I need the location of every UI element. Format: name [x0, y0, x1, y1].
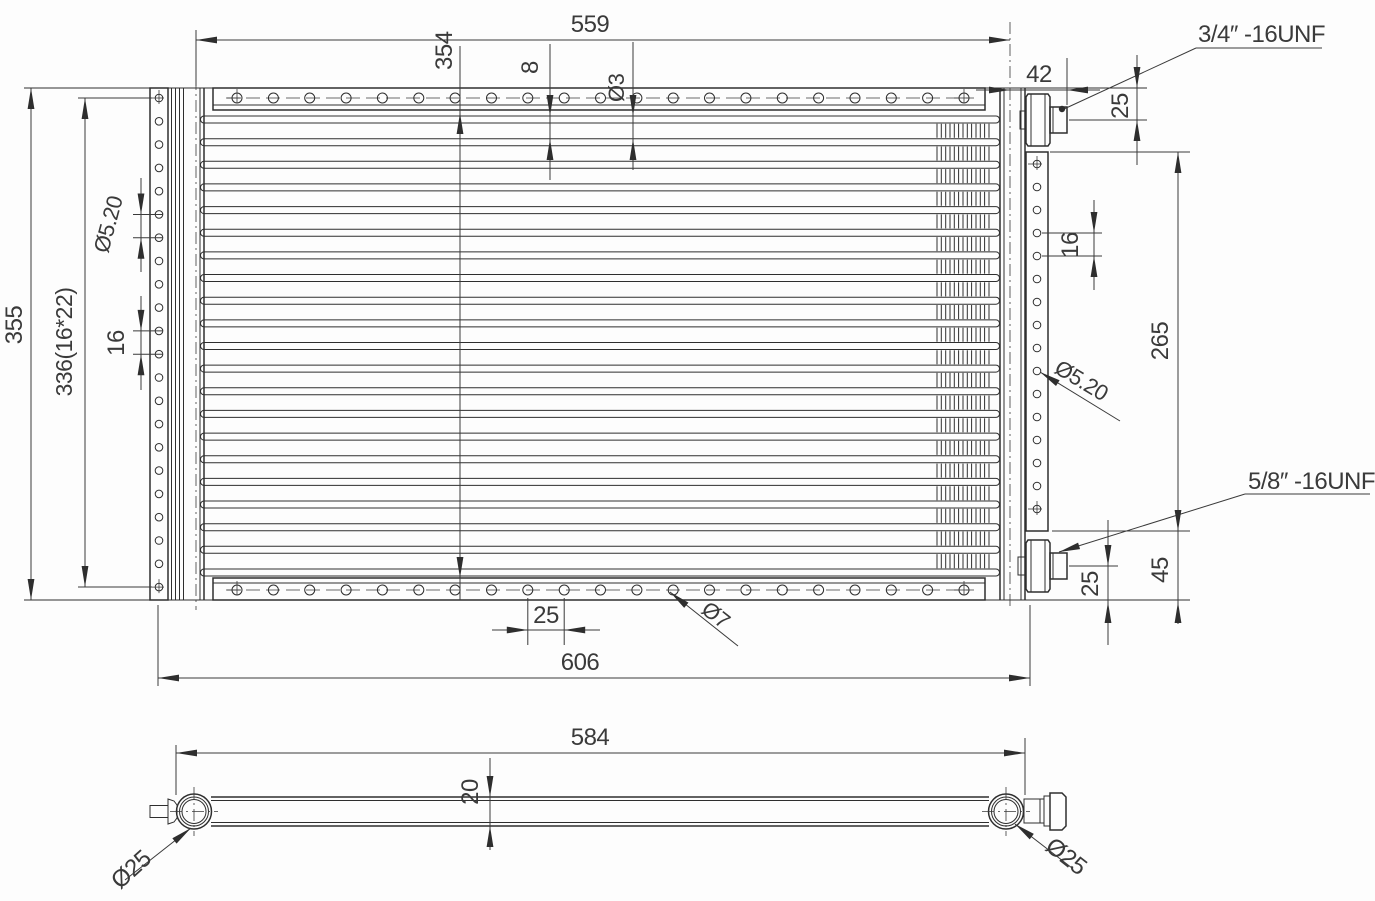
dimension-arrow: [1091, 256, 1098, 277]
dim-dia520l-text: Ø5.20: [89, 193, 128, 255]
core-tubes: [201, 116, 1000, 576]
tube: [201, 297, 1000, 304]
drawing-sheet: 559 354 8 Ø3 42 3/4″ -16UNF 25 16: [0, 0, 1375, 901]
left-bracket-hole: [155, 257, 163, 265]
left-bracket-hole: [155, 537, 163, 545]
dimension-arrow: [507, 627, 528, 634]
tube: [201, 229, 1000, 236]
dimension-arrow: [457, 557, 464, 578]
dimension-arrow: [1091, 212, 1098, 233]
dimension-arrow: [176, 750, 197, 757]
right-bracket-hole: [1033, 390, 1041, 398]
tube: [201, 207, 1000, 214]
tube: [201, 501, 1000, 508]
side-right-port: [982, 787, 1066, 836]
dim-25b-text: 25: [533, 602, 559, 629]
right-bracket-hole: [1033, 459, 1041, 467]
dim-354-text: 354: [431, 31, 458, 70]
dimension-8: 8: [517, 44, 550, 180]
dimension-arrow: [28, 88, 35, 109]
dimension-arrow: [487, 776, 494, 797]
tube: [201, 388, 1000, 395]
dim-265-text: 265: [1147, 322, 1174, 361]
left-bracket-hole: [155, 467, 163, 475]
dimension-584: 584: [176, 724, 1025, 795]
dimension-arrow: [1175, 152, 1182, 173]
tube: [201, 116, 1000, 123]
dimension-dia520-right: Ø5.20: [1040, 355, 1120, 421]
dimension-dia3: Ø3: [604, 42, 633, 170]
right-bracket-hole: [1033, 252, 1041, 260]
side-left-port: [150, 787, 218, 836]
right-bracket: [1026, 152, 1048, 531]
left-bracket-hole: [155, 141, 163, 149]
side-right-fitting: [1024, 799, 1044, 823]
dimension-arrow: [138, 354, 145, 375]
dim-25tr-text: 25: [1107, 93, 1134, 119]
dimension-45: 45: [1147, 531, 1178, 624]
tube: [201, 139, 1000, 146]
top-port-thread-text: 3/4″ -16UNF: [1198, 21, 1325, 48]
dim-dia25r-text: Ø25: [1040, 832, 1091, 880]
tube: [201, 252, 1000, 259]
dimension-arrow: [1175, 510, 1182, 531]
dim-16r-text: 16: [1057, 232, 1084, 258]
dimension-arrow: [1134, 67, 1141, 88]
dimension-arrow: [1175, 602, 1182, 623]
left-bracket-hole: [155, 281, 163, 289]
dimension-354: 354: [431, 31, 460, 600]
dimension-arrow: [487, 826, 494, 847]
left-bracket-hole: [155, 397, 163, 405]
dimension-355: 355: [1, 88, 31, 600]
right-bracket-hole: [1033, 183, 1041, 191]
left-bracket-hole: [155, 420, 163, 428]
dim-dia520r-text: Ø5.20: [1050, 355, 1112, 406]
dimension-arrow: [158, 675, 179, 682]
dimension-arrow: [1134, 120, 1141, 141]
dimension-arrow: [138, 238, 145, 259]
dim-dia3-text: Ø3: [604, 73, 629, 102]
tube: [201, 161, 1000, 168]
tube: [201, 365, 1000, 372]
dimension-arrow: [82, 98, 89, 119]
left-bracket-hole: [155, 374, 163, 382]
tube: [201, 433, 1000, 440]
top-plate: [213, 88, 985, 110]
dim-42-text: 42: [1026, 61, 1052, 88]
dimension-arrow: [547, 139, 554, 160]
left-bracket: [150, 88, 168, 600]
dimension-arrow: [138, 194, 145, 215]
side-tube-body: [211, 797, 989, 826]
bottom-plate: [213, 578, 985, 600]
left-bracket-hole: [155, 444, 163, 452]
left-bracket-hole: [155, 560, 163, 568]
dimension-arrow: [630, 139, 637, 160]
dimension-559: 559: [196, 11, 1010, 86]
right-bracket-hole: [1033, 275, 1041, 283]
dimension-arrow: [989, 37, 1010, 44]
dim-20-text: 20: [457, 779, 484, 805]
side-left-stub: [150, 806, 168, 818]
dimension-arrow: [564, 627, 585, 634]
tube: [201, 343, 1000, 350]
dimension-arrow: [1105, 545, 1112, 566]
dim-355-text: 355: [1, 306, 28, 345]
left-bracket-hole: [155, 304, 163, 312]
tube: [201, 478, 1000, 485]
left-bracket-hole: [155, 118, 163, 126]
dim-45-text: 45: [1147, 557, 1174, 583]
tube: [201, 569, 1000, 576]
dim-16l-text: 16: [103, 330, 130, 356]
right-bracket-hole: [1033, 321, 1041, 329]
dimension-arrow: [138, 310, 145, 331]
left-header: [172, 78, 205, 610]
bottom-port-thread-text: 5/8″ -16UNF: [1248, 468, 1375, 495]
left-bracket-hole: [155, 513, 163, 521]
dimension-dia520-left: Ø5.20: [89, 178, 163, 272]
dimension-arrow: [82, 566, 89, 587]
dim-25br-text: 25: [1077, 571, 1104, 597]
right-bracket-hole: [1033, 229, 1041, 237]
dim-dia25l-text: Ø25: [106, 845, 157, 895]
right-bracket-hole: [1033, 367, 1041, 375]
dim-559-text: 559: [571, 11, 610, 38]
dimension-arrow: [1004, 750, 1025, 757]
left-bracket-hole: [155, 187, 163, 195]
dimension-20: 20: [457, 758, 490, 850]
dimension-arrow: [1013, 821, 1034, 839]
dimension-42: 42: [976, 58, 1100, 105]
dim-dia7-text: Ø7: [697, 596, 735, 633]
tube: [201, 275, 1000, 282]
dimension-arrow: [1009, 675, 1030, 682]
dimension-336: 336(16*22): [51, 98, 152, 587]
tube: [201, 184, 1000, 191]
tube: [201, 546, 1000, 553]
dim-584-text: 584: [571, 724, 610, 751]
top-port-fitting: [1020, 94, 1067, 146]
label-top-port: 3/4″ -16UNF: [1059, 21, 1325, 112]
dimension-25-bottom: 25: [492, 598, 600, 645]
tube: [201, 320, 1000, 327]
label-bottom-port: 5/8″ -16UNF: [1059, 468, 1375, 552]
tube: [201, 410, 1000, 417]
dim-606-text: 606: [561, 649, 600, 676]
right-bracket-hole: [1033, 436, 1041, 444]
right-bracket-hole: [1033, 206, 1041, 214]
dimension-arrow: [28, 579, 35, 600]
dimension-25-bottom-right: 25: [1069, 520, 1118, 645]
right-bracket-hole: [1033, 298, 1041, 306]
front-view: [24, 22, 1190, 610]
condenser-engineering-drawing: 559 354 8 Ø3 42 3/4″ -16UNF 25 16: [0, 0, 1375, 901]
dimension-265: 265: [1050, 152, 1190, 531]
dimension-arrow: [1105, 602, 1112, 623]
right-bracket-hole: [1033, 413, 1041, 421]
leader-dot: [1059, 106, 1065, 112]
tube: [201, 524, 1000, 531]
dim-336-text: 336(16*22): [51, 288, 77, 397]
dim-8-text: 8: [517, 61, 544, 74]
dimension-606: 606: [158, 605, 1030, 686]
dimension-16-left: 16: [103, 296, 163, 390]
bottom-port-fitting: [1018, 540, 1067, 592]
side-view: 584 20 Ø25 Ø25: [106, 724, 1092, 894]
left-bracket-hole: [155, 164, 163, 172]
left-bracket-hole: [155, 490, 163, 498]
tube: [201, 456, 1000, 463]
right-bracket-hole: [1033, 344, 1041, 352]
dimension-arrow: [196, 37, 217, 44]
right-header: [1000, 22, 1025, 610]
right-bracket-hole: [1033, 482, 1041, 490]
